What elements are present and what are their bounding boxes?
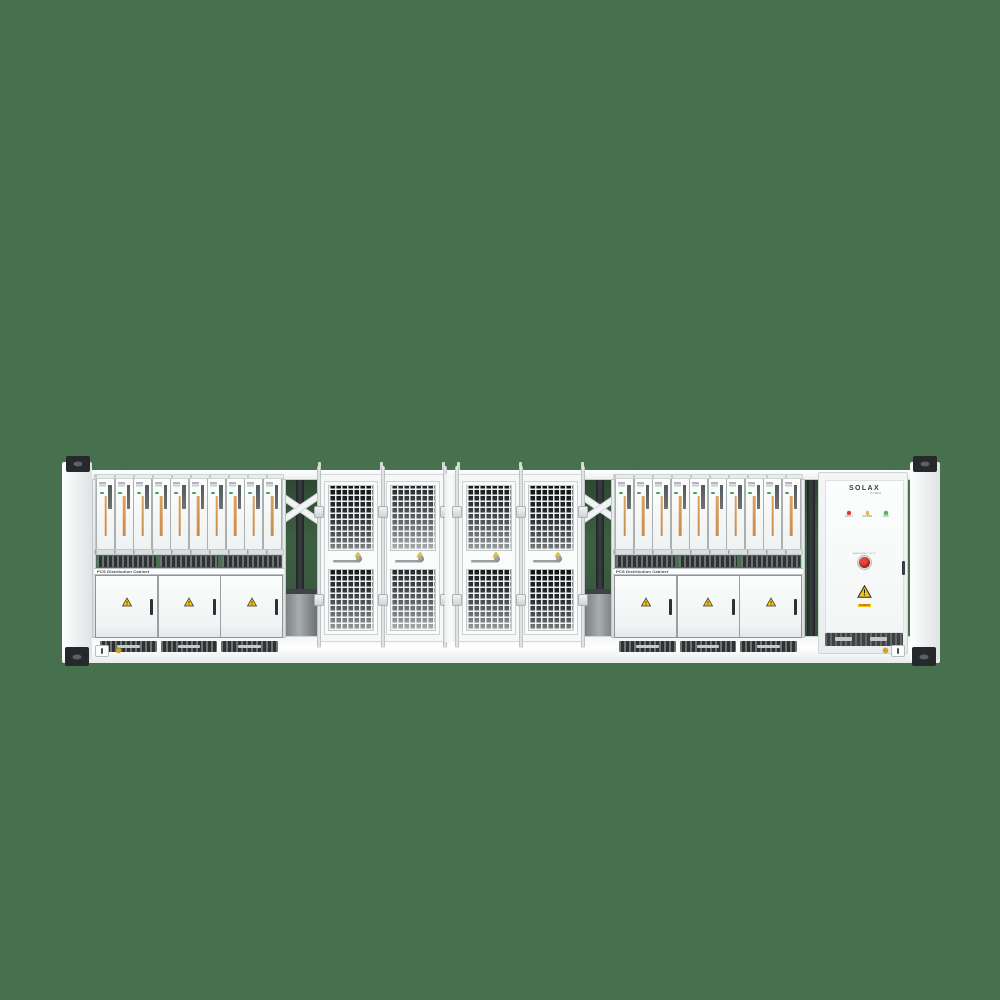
module-label-text xyxy=(99,482,106,484)
module-label-text xyxy=(192,482,199,484)
module-handle-strip xyxy=(623,496,626,536)
module-status-led xyxy=(619,492,623,494)
door-latch-knob xyxy=(556,556,562,562)
module-status-led xyxy=(785,492,789,494)
hinge-rod xyxy=(317,466,321,648)
door-handle xyxy=(732,599,735,615)
mesh-door xyxy=(324,481,378,635)
battery-module xyxy=(764,479,781,549)
door-latch-row xyxy=(525,551,577,566)
cabinet-door: ! xyxy=(740,576,801,637)
module-vent-slot xyxy=(738,485,742,509)
vent-grille-segment xyxy=(740,641,797,652)
vent-grille-segment xyxy=(741,556,800,567)
module-status-led xyxy=(730,492,734,494)
mesh-panel-lower xyxy=(466,569,512,631)
rack-mid-rail xyxy=(613,549,803,555)
hinge-rod xyxy=(519,466,523,648)
module-handle-strip xyxy=(216,496,219,536)
module-status-led xyxy=(637,492,641,494)
module-vent-slot xyxy=(219,485,223,509)
module-handle-strip xyxy=(642,496,645,536)
module-status-led xyxy=(229,492,233,494)
battery-module xyxy=(653,479,670,549)
module-status-led xyxy=(266,492,270,494)
emergency-stop-button xyxy=(858,556,871,569)
module-status-led xyxy=(155,492,159,494)
module-status-led xyxy=(137,492,141,494)
module-vent-slot xyxy=(775,485,779,509)
module-handle-strip xyxy=(697,496,700,536)
battery-module xyxy=(116,479,133,549)
module-vent-slot xyxy=(646,485,650,509)
mesh-panel-lower xyxy=(528,569,574,631)
cabinet-door: ! xyxy=(678,576,739,637)
module-status-led xyxy=(674,492,678,494)
module-vent-slot xyxy=(256,485,260,509)
battery-module xyxy=(245,479,262,549)
module-status-led xyxy=(693,492,697,494)
interior-post xyxy=(807,479,815,636)
battery-rack-right: PCS Distribution Cabinet ! ! ! xyxy=(613,474,803,652)
run-led: RUN xyxy=(877,511,895,518)
module-vent-slot xyxy=(720,485,724,509)
cabinet-door-panel: SOLAX POWER FAULT POWER RUN EMERGENCY ST… xyxy=(825,480,904,633)
warning-icon: ! xyxy=(641,597,651,606)
mesh-door-group-right xyxy=(456,474,584,642)
svg-text:!: ! xyxy=(707,600,709,606)
battery-module xyxy=(227,479,244,549)
svg-text:!: ! xyxy=(645,600,647,606)
battery-module xyxy=(746,479,763,549)
module-handle-strip xyxy=(790,496,793,536)
hinge-rod xyxy=(381,466,385,648)
module-vent-slot xyxy=(701,485,705,509)
battery-module xyxy=(264,479,281,549)
module-status-led xyxy=(748,492,752,494)
module-label-text xyxy=(136,482,143,484)
battery-module-row xyxy=(615,479,801,549)
module-label-text xyxy=(655,482,662,484)
module-vent-slot xyxy=(145,485,149,509)
door-latch-row xyxy=(325,551,377,566)
mesh-panel-upper xyxy=(328,485,374,551)
module-handle-strip xyxy=(735,496,738,536)
door-latch-knob xyxy=(494,556,500,562)
corner-casting-bottom-right xyxy=(912,647,936,666)
mesh-panel-upper xyxy=(528,485,574,551)
module-vent-slot xyxy=(108,485,112,509)
module-vent-slot xyxy=(201,485,205,509)
cabinet-bottom-vent xyxy=(825,633,903,646)
battery-module xyxy=(190,479,207,549)
power-led: POWER xyxy=(859,511,877,518)
door-latch-row xyxy=(387,551,439,566)
led-dot xyxy=(847,511,851,515)
module-vent-slot xyxy=(757,485,761,509)
door-handle xyxy=(150,599,153,615)
module-handle-strip xyxy=(123,496,126,536)
battery-module xyxy=(635,479,652,549)
hinge-rod xyxy=(455,466,459,648)
battery-module xyxy=(709,479,726,549)
module-handle-strip xyxy=(716,496,719,536)
svg-text:!: ! xyxy=(126,600,128,606)
rack-vent-grille xyxy=(97,556,281,567)
distribution-cabinet-doors: ! ! ! xyxy=(95,575,283,638)
scene-background: PCS Distribution Cabinet ! ! ! xyxy=(0,0,1000,1000)
module-status-led xyxy=(656,492,660,494)
battery-module xyxy=(153,479,170,549)
rack-label-strip: PCS Distribution Cabinet xyxy=(613,568,803,575)
cabinet-door-handle xyxy=(902,561,905,575)
status-led-row: FAULT POWER RUN xyxy=(840,511,895,518)
cabinet-door: ! xyxy=(159,576,220,637)
mesh-panel-upper xyxy=(390,485,436,551)
rack-vent-grille xyxy=(616,556,800,567)
battery-module xyxy=(171,479,188,549)
container-corner-post-right xyxy=(910,462,940,660)
module-handle-strip xyxy=(160,496,163,536)
module-vent-slot xyxy=(164,485,168,509)
battery-module xyxy=(672,479,689,549)
door-handle xyxy=(213,599,216,615)
vent-grille-segment xyxy=(221,641,278,652)
module-label-text xyxy=(748,482,755,484)
vent-handle-bar xyxy=(835,637,852,641)
base-indicator-left xyxy=(116,648,121,653)
door-latch-knob xyxy=(356,556,362,562)
frame-gap-cabinet xyxy=(803,479,818,636)
module-handle-strip xyxy=(253,496,256,536)
warning-icon: ! xyxy=(122,597,132,606)
battery-module xyxy=(616,479,633,549)
module-status-led xyxy=(248,492,252,494)
module-label-text xyxy=(247,482,254,484)
door-latch-knob xyxy=(418,556,424,562)
module-status-led xyxy=(711,492,715,494)
mesh-panel-lower xyxy=(390,569,436,631)
vent-handle-bar xyxy=(870,637,887,641)
module-handle-strip xyxy=(104,496,107,536)
frame-gap-right xyxy=(584,479,613,636)
svg-text:!: ! xyxy=(251,600,253,606)
svg-text:!: ! xyxy=(863,588,866,597)
base-socket-left xyxy=(95,645,109,657)
frame-gap-left xyxy=(284,479,318,636)
vent-grille-segment xyxy=(616,556,675,567)
door-latch-row xyxy=(463,551,515,566)
module-label-text xyxy=(618,482,625,484)
module-status-led xyxy=(100,492,104,494)
battery-module xyxy=(134,479,151,549)
battery-module xyxy=(727,479,744,549)
corner-casting-top-left xyxy=(66,456,90,472)
module-label-text xyxy=(785,482,792,484)
battery-module xyxy=(690,479,707,549)
led-label: RUN xyxy=(877,516,895,518)
module-label-text xyxy=(173,482,180,484)
module-vent-slot xyxy=(794,485,798,509)
corner-casting-top-right xyxy=(913,456,937,472)
vent-grille-segment xyxy=(160,556,219,567)
svg-text:!: ! xyxy=(188,600,190,606)
module-label-text xyxy=(118,482,125,484)
module-label-text xyxy=(210,482,217,484)
mesh-panel-lower xyxy=(328,569,374,631)
module-status-led xyxy=(767,492,771,494)
module-label-text xyxy=(229,482,236,484)
rack-bottom-vent xyxy=(100,641,278,652)
module-handle-strip xyxy=(772,496,775,536)
rack-bottom-vent xyxy=(619,641,797,652)
battery-rack-left: PCS Distribution Cabinet ! ! ! xyxy=(94,474,284,652)
brand-sub-text: POWER xyxy=(848,492,882,495)
led-dot xyxy=(866,511,870,515)
module-vent-slot xyxy=(182,485,186,509)
warning-icon: ! xyxy=(184,597,194,606)
rack-mid-rail xyxy=(94,549,284,555)
fault-led: FAULT xyxy=(840,511,858,518)
led-label: POWER xyxy=(859,516,877,518)
base-socket-right xyxy=(891,645,905,657)
vent-grille-segment xyxy=(222,556,281,567)
module-handle-strip xyxy=(234,496,237,536)
battery-module xyxy=(783,479,800,549)
emergency-stop: EMERGENCY STOP xyxy=(826,553,903,569)
module-handle-strip xyxy=(271,496,274,536)
base-indicator-right xyxy=(883,648,888,653)
cabinet-door: ! xyxy=(96,576,157,637)
cabinet-door: ! xyxy=(221,576,282,637)
module-vent-slot xyxy=(664,485,668,509)
module-status-led xyxy=(211,492,215,494)
module-vent-slot xyxy=(127,485,131,509)
brand-logo: SOLAX xyxy=(826,485,903,492)
module-handle-strip xyxy=(197,496,200,536)
module-handle-strip xyxy=(660,496,663,536)
module-handle-strip xyxy=(178,496,181,536)
warning-icon: ! xyxy=(247,597,257,606)
module-status-led xyxy=(192,492,196,494)
door-handle xyxy=(275,599,278,615)
warning-icon: ! xyxy=(766,597,776,606)
distribution-cabinet-doors: ! ! ! xyxy=(614,575,802,638)
module-label-text xyxy=(766,482,773,484)
warning-caption: DANGER xyxy=(858,604,871,607)
mesh-door xyxy=(524,481,578,635)
module-label-text xyxy=(729,482,736,484)
module-label-text xyxy=(711,482,718,484)
module-label-text xyxy=(674,482,681,484)
module-label-text xyxy=(155,482,162,484)
module-label-text xyxy=(266,482,273,484)
bess-container: PCS Distribution Cabinet ! ! ! xyxy=(62,456,940,668)
led-dot xyxy=(884,511,888,515)
hinge-rod xyxy=(581,466,585,648)
vent-grille-segment xyxy=(679,556,738,567)
warning-icon: ! xyxy=(857,585,872,598)
warning-icon: ! xyxy=(703,597,713,606)
module-label-text xyxy=(637,482,644,484)
module-label-text xyxy=(692,482,699,484)
vent-grille-segment xyxy=(97,556,156,567)
mesh-door-group-left xyxy=(318,474,446,642)
module-status-led xyxy=(174,492,178,494)
battery-module xyxy=(208,479,225,549)
door-handle xyxy=(669,599,672,615)
cabinet-door: ! xyxy=(615,576,676,637)
module-handle-strip xyxy=(753,496,756,536)
rack-label-strip: PCS Distribution Cabinet xyxy=(94,568,284,575)
module-vent-slot xyxy=(275,485,279,509)
module-vent-slot xyxy=(238,485,242,509)
module-status-led xyxy=(118,492,122,494)
led-label: FAULT xyxy=(840,516,858,518)
svg-text:!: ! xyxy=(770,600,772,606)
module-vent-slot xyxy=(683,485,687,509)
cabinet-warning: ! DANGER xyxy=(826,585,903,607)
battery-module-row xyxy=(96,479,282,549)
module-handle-strip xyxy=(141,496,144,536)
solax-control-cabinet: SOLAX POWER FAULT POWER RUN EMERGENCY ST… xyxy=(818,472,908,654)
module-vent-slot xyxy=(627,485,631,509)
container-corner-post-left xyxy=(62,462,92,660)
corner-casting-bottom-left xyxy=(65,647,89,666)
vent-grille-segment xyxy=(161,641,218,652)
mesh-door xyxy=(462,481,516,635)
vent-grille-segment xyxy=(680,641,737,652)
vent-grille-segment xyxy=(619,641,676,652)
mesh-door xyxy=(386,481,440,635)
mesh-panel-upper xyxy=(466,485,512,551)
battery-module xyxy=(97,479,114,549)
emergency-stop-label: EMERGENCY STOP xyxy=(826,553,903,555)
door-handle xyxy=(794,599,797,615)
module-handle-strip xyxy=(679,496,682,536)
